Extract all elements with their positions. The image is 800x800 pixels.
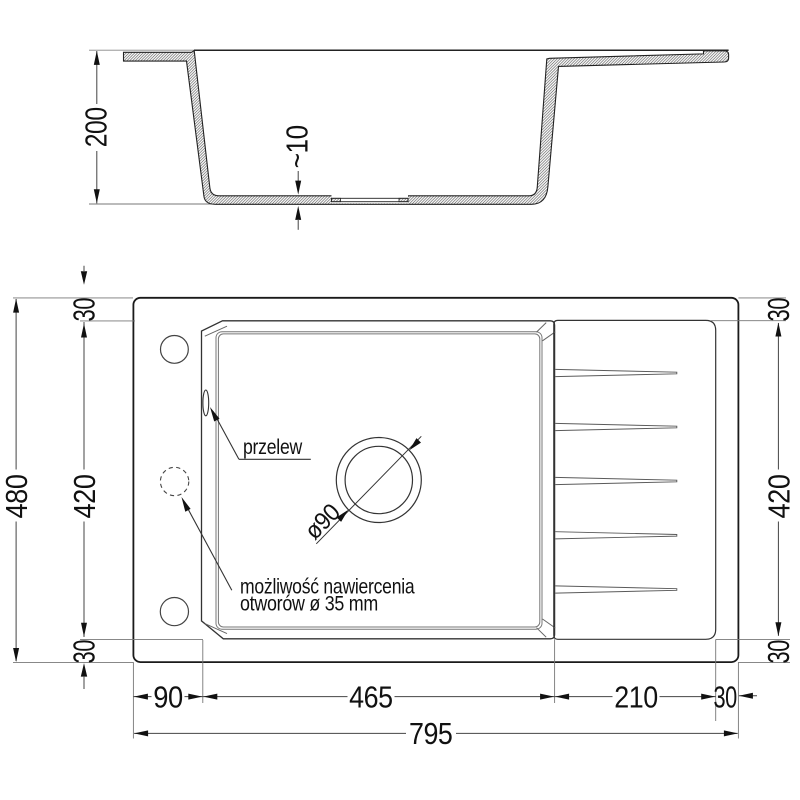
svg-text:420: 420 xyxy=(68,475,102,519)
svg-text:420: 420 xyxy=(762,475,796,519)
svg-text:30: 30 xyxy=(762,298,796,322)
svg-text:przelew: przelew xyxy=(243,436,303,459)
svg-text:30: 30 xyxy=(713,680,737,714)
svg-text:30: 30 xyxy=(68,640,102,664)
svg-text:30: 30 xyxy=(762,640,796,664)
svg-text:otworów ø 35 mm: otworów ø 35 mm xyxy=(240,593,378,616)
svg-text:480: 480 xyxy=(0,475,34,519)
svg-text:30: 30 xyxy=(68,298,102,322)
svg-text:210: 210 xyxy=(614,680,658,714)
svg-text:465: 465 xyxy=(349,680,393,714)
svg-text:~10: ~10 xyxy=(281,125,315,168)
svg-text:90: 90 xyxy=(153,680,183,714)
svg-text:795: 795 xyxy=(409,717,453,751)
svg-text:200: 200 xyxy=(80,107,114,147)
